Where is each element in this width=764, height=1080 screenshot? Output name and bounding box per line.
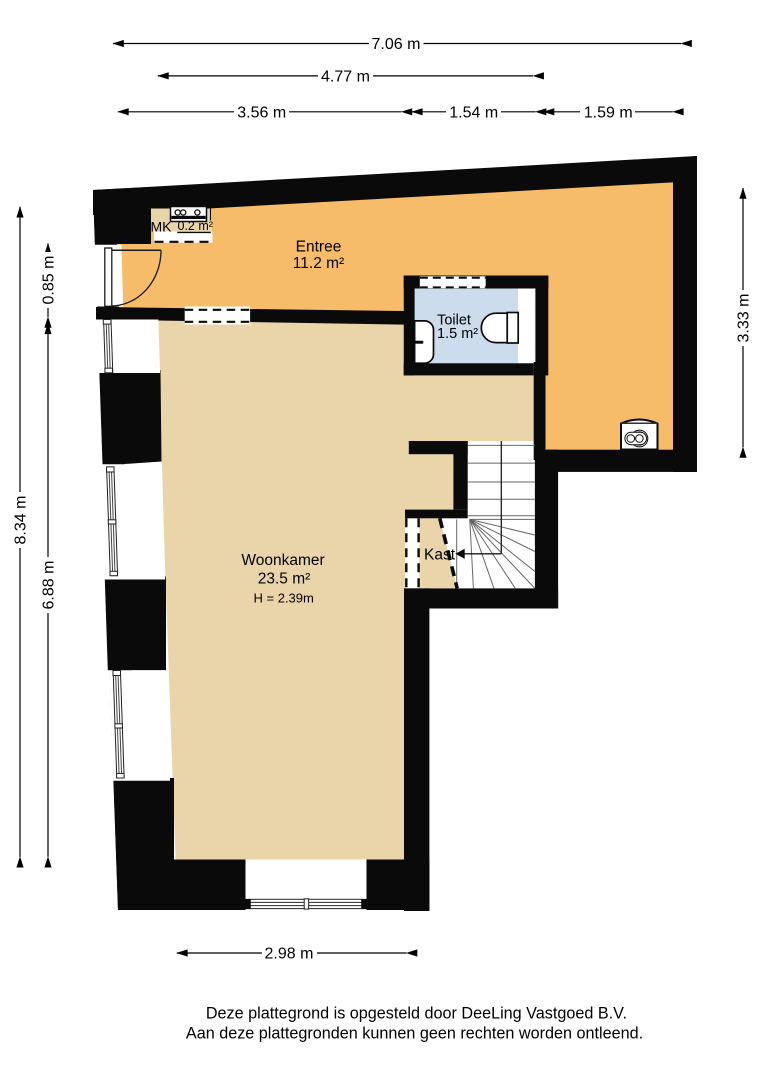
svg-text:1.59 m: 1.59 m [584,105,633,122]
svg-text:0.85 m: 0.85 m [41,256,58,305]
svg-text:3.56 m: 3.56 m [237,105,286,122]
svg-text:11.2 m²: 11.2 m² [293,255,344,272]
svg-text:Aan deze plattegronden kunnen: Aan deze plattegronden kunnen geen recht… [186,1025,643,1043]
svg-text:23.5 m²: 23.5 m² [258,571,311,588]
svg-text:3.33 m: 3.33 m [736,294,753,343]
svg-text:6.88 m: 6.88 m [41,561,58,610]
svg-text:7.06 m: 7.06 m [372,36,421,53]
svg-text:4.77 m: 4.77 m [321,69,370,86]
svg-text:H = 2.39m: H = 2.39m [254,590,314,605]
svg-text:Kast: Kast [424,547,456,564]
svg-text:2.98 m: 2.98 m [265,946,314,963]
svg-text:Deze plattegrond is opgesteld: Deze plattegrond is opgesteld door DeeLi… [206,1005,627,1023]
svg-text:8.34 m: 8.34 m [13,496,30,545]
svg-text:1.54 m: 1.54 m [449,105,498,122]
svg-text:MK: MK [151,218,173,234]
svg-text:1.5 m²: 1.5 m² [437,326,478,342]
svg-text:Woonkamer: Woonkamer [241,552,324,569]
svg-text:Entree: Entree [296,239,342,256]
svg-text:0.2 m²: 0.2 m² [178,219,213,233]
